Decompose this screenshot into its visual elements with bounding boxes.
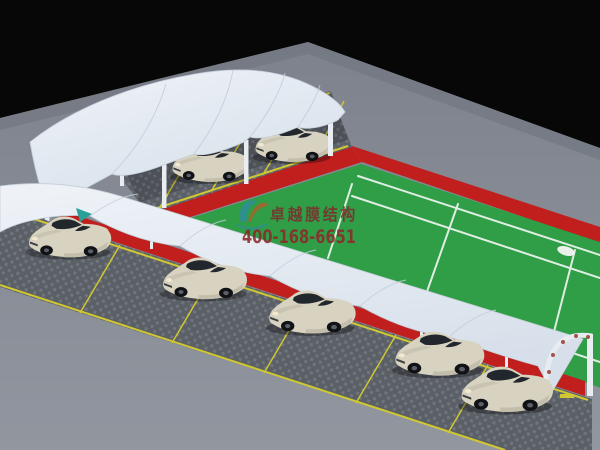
- watermark-phone-text: 400-168-6651: [242, 226, 356, 248]
- upper-front-column-3: [244, 140, 249, 184]
- scene-canvas: 卓越膜结构 400-168-6651: [0, 0, 600, 450]
- arch-dot-2: [551, 353, 555, 357]
- arch-column: [587, 334, 593, 396]
- watermark-brand-text: 卓越膜结构: [270, 205, 358, 224]
- arch-dot-5: [586, 335, 590, 339]
- upper-front-column-2: [162, 163, 167, 208]
- arch-dot-4: [574, 334, 578, 338]
- arch-dot-1: [547, 370, 551, 374]
- arch-dot-3: [561, 340, 565, 344]
- rendered-scene: 卓越膜结构 400-168-6651: [0, 0, 600, 450]
- arch-base-plate: [560, 394, 574, 398]
